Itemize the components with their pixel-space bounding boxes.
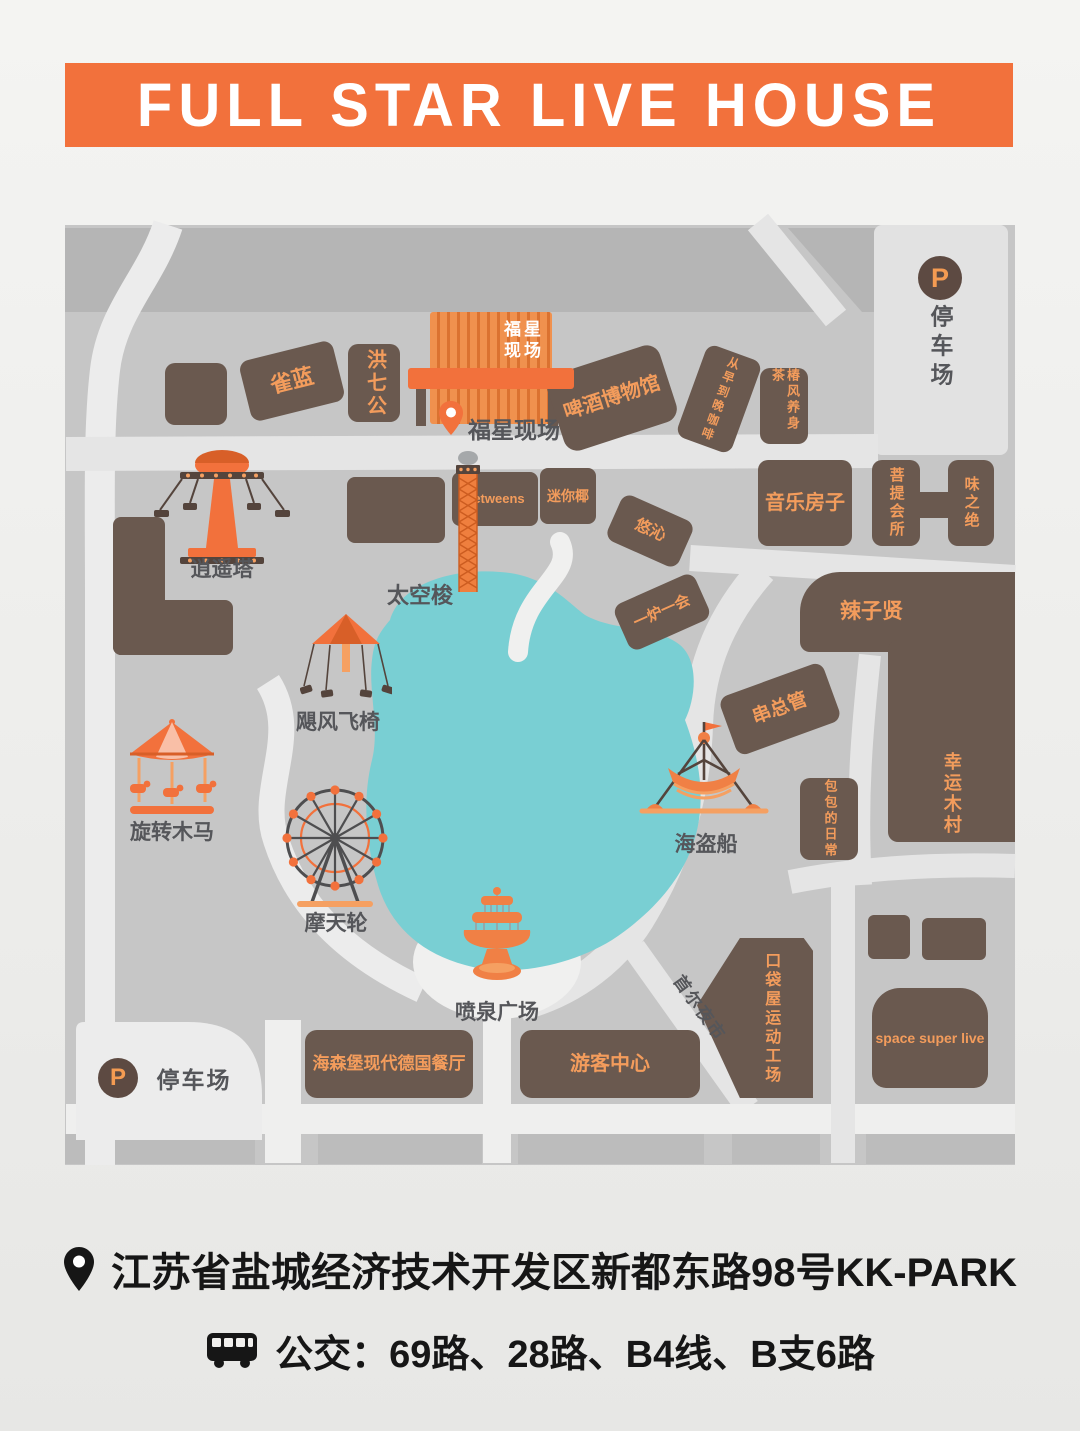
bus-icon: [205, 1330, 259, 1370]
building-baobao-daily: 包包的日常: [800, 778, 858, 860]
parking-label-top: 停车场: [923, 305, 957, 392]
building-unlabeled-4: [922, 918, 986, 960]
pirate-ship-icon: [638, 716, 770, 823]
stage-sign: 福星 现场: [504, 319, 544, 362]
building-label: 包包的日常: [822, 779, 837, 859]
building-unlabeled-3: [868, 915, 910, 959]
building-label: 口袋屋运动工场: [761, 952, 779, 1085]
parking-symbol: P: [110, 1064, 126, 1092]
location-pin-icon: [63, 1246, 95, 1292]
bus-line: 公交：69路、28路、B4线、B支6路: [0, 1324, 1080, 1376]
swing-chairs-label: 飓风飞椅: [296, 706, 380, 736]
building-chunfeng-tea: 椿风养身茶: [760, 368, 808, 444]
building-label: 音乐房子: [765, 492, 845, 515]
stage-sign-line2: 现场: [504, 340, 544, 361]
building-l-shape-b: [113, 600, 233, 655]
parking-symbol: P: [931, 263, 949, 294]
building-music-house: 音乐房子: [758, 460, 852, 546]
building-unlabeled-2: [347, 477, 445, 543]
building-label: 幸运木村: [941, 640, 962, 836]
block-top-left: [65, 228, 830, 312]
carousel-label: 旋转木马: [130, 816, 214, 846]
building-label: 一炉一会: [631, 592, 693, 632]
bus-routes-text: 公交：69路、28路、B4线、B支6路: [275, 1323, 875, 1378]
address-text: 江苏省盐城经济技术开发区新都东路98号KK-PARK: [111, 1240, 1017, 1298]
building-visitor-center: 游客中心: [520, 1030, 700, 1098]
parking-icon-bottom: P: [98, 1058, 138, 1098]
building-label: 从早到晚咖啡: [697, 354, 741, 443]
building-label: space super live: [876, 1030, 985, 1046]
stage-pin-label: 福星现场: [468, 411, 560, 445]
pirate-ship-label: 海盗船: [675, 828, 738, 858]
stage-pin-icon: [438, 400, 464, 441]
ferris-wheel-label: 摩天轮: [305, 907, 368, 937]
building-label: 游客中心: [570, 1053, 650, 1076]
parking-label-bottom: 停车场: [157, 1061, 232, 1095]
building-label: 洪七公: [363, 349, 386, 418]
building-unlabeled-1: [165, 363, 227, 425]
drop-tower-label: 逍遥塔: [191, 553, 254, 583]
stage-bar: [408, 368, 574, 389]
fountain-plaza-label: 喷泉广场: [455, 996, 539, 1026]
building-label: 味之绝: [962, 476, 979, 530]
building-label: 菩提会所: [887, 467, 904, 539]
building-label: 辣子贤: [840, 600, 903, 624]
building-label: 悠沁: [632, 516, 669, 546]
building-label: 啤酒博物馆: [561, 372, 663, 425]
building-heisenberg-restaurant: 海森堡现代德国餐厅: [305, 1030, 473, 1098]
building-label: 雀蓝: [268, 363, 317, 398]
building-weizhijue: 味之绝: [948, 460, 994, 546]
address-line: 江苏省盐城经济技术开发区新都东路98号KK-PARK: [0, 1240, 1080, 1298]
building-connector: [918, 492, 950, 518]
poster-page: FULL STAR LIVE HOUSE: [0, 0, 1080, 1431]
building-puti-club: 菩提会所: [872, 460, 920, 546]
building-label: 海森堡现代德国餐厅: [313, 1054, 466, 1074]
building-space-super-live: space super live: [872, 988, 988, 1088]
swing-chairs-icon: [300, 612, 392, 717]
parking-icon-top: P: [918, 256, 962, 300]
building-hongqigong: 洪七公: [348, 344, 400, 422]
building-label: 迷你椰: [547, 488, 589, 504]
building-label: 椿风养身茶: [769, 368, 799, 444]
ferris-wheel-icon: [270, 780, 400, 917]
space-shuttle-icon: [450, 448, 486, 601]
building-mini-coconut: 迷你椰: [540, 468, 596, 524]
building-lucky-wood-village: 幸运木村: [888, 640, 1015, 842]
space-shuttle-label: 太空梭: [387, 578, 453, 610]
stage-leg-left: [416, 388, 426, 426]
stage-sign-line1: 福星: [504, 319, 544, 340]
fountain-icon: [454, 886, 540, 995]
